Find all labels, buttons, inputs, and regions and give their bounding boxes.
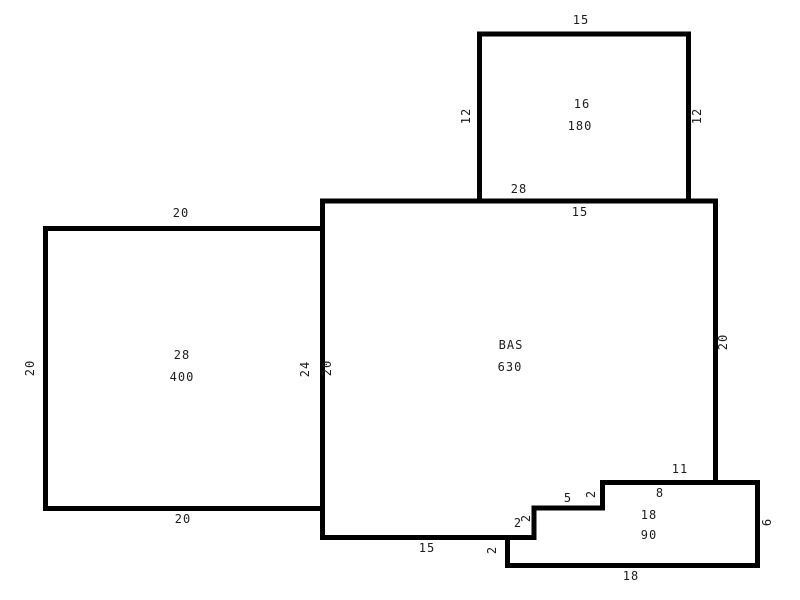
main-room-area: 630 bbox=[498, 360, 523, 374]
dim-main-room-right-height: 20 bbox=[716, 334, 730, 350]
dim-step-lower-height: 2 bbox=[485, 546, 499, 554]
dim-left-room-top-width: 20 bbox=[173, 206, 189, 220]
dim-lower-room-top-width: 11 bbox=[672, 462, 688, 476]
dim-upper-room-left-height: 12 bbox=[459, 108, 473, 124]
dim-main-room-bottom-width: 15 bbox=[419, 541, 435, 555]
dim-main-room-left-height: 20 bbox=[320, 360, 334, 376]
dim-step-upper-height: 2 bbox=[584, 490, 598, 498]
dim-left-room-bottom-width: 20 bbox=[175, 512, 191, 526]
dim-lower-room-right-height: 6 bbox=[760, 518, 774, 526]
dim-left-room-right-height: 24 bbox=[298, 361, 312, 377]
upper-room-area: 180 bbox=[568, 119, 593, 133]
upper-room-label: 16 bbox=[574, 97, 590, 111]
dim-upper-room-right-height: 12 bbox=[690, 108, 704, 124]
dim-upper-room-top-width: 15 bbox=[573, 13, 589, 27]
main-room-label: BAS bbox=[499, 338, 524, 352]
lower-room-label-a: 8 bbox=[656, 486, 664, 500]
dim-step-upper-width: 5 bbox=[564, 491, 572, 505]
dim-upper-room-bottom-width: 28 bbox=[511, 182, 527, 196]
left-room-area: 400 bbox=[170, 370, 195, 384]
dim-lower-room-bottom-width: 18 bbox=[623, 569, 639, 583]
labels-layer: 151212161802815202840020242020BAS6302015… bbox=[0, 0, 800, 600]
floor-plan-sketch: 151212161802815202840020242020BAS6302015… bbox=[0, 0, 800, 600]
lower-room-label-b: 18 bbox=[641, 508, 657, 522]
dim-step-middle-height: 2 bbox=[519, 514, 533, 522]
left-room-label: 28 bbox=[174, 348, 190, 362]
lower-room-area: 90 bbox=[641, 528, 657, 542]
dim-left-room-left-height: 20 bbox=[23, 360, 37, 376]
dim-main-room-top-width: 15 bbox=[572, 205, 588, 219]
